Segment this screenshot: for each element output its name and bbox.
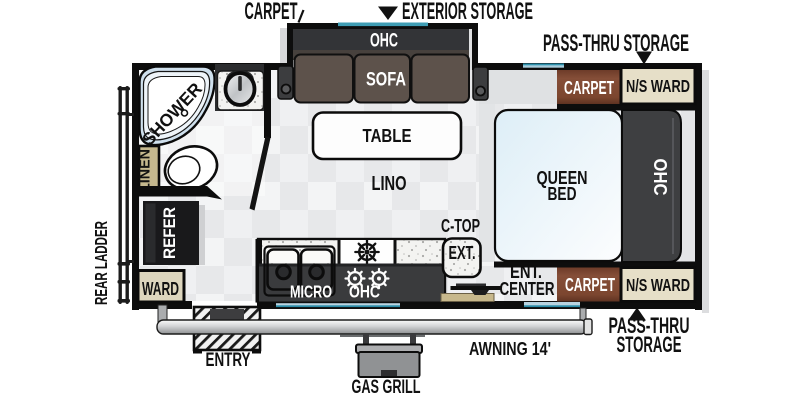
svg-text:LINEN: LINEN bbox=[138, 149, 154, 192]
svg-text:C-TOP: C-TOP bbox=[441, 215, 480, 236]
svg-text:SOFA: SOFA bbox=[366, 70, 406, 91]
svg-text:OHC: OHC bbox=[349, 282, 380, 302]
svg-text:AWNING 14': AWNING 14' bbox=[469, 338, 551, 359]
svg-text:WARD: WARD bbox=[142, 279, 179, 299]
svg-text:EXTERIOR STORAGE: EXTERIOR STORAGE bbox=[402, 0, 533, 25]
svg-text:CARPET: CARPET bbox=[565, 274, 615, 295]
svg-text:REAR LADDER: REAR LADDER bbox=[91, 221, 111, 305]
svg-text:MICRO: MICRO bbox=[290, 282, 332, 302]
svg-text:STORAGE: STORAGE bbox=[617, 332, 682, 357]
svg-text:PASS-THRU STORAGE: PASS-THRU STORAGE bbox=[543, 30, 689, 57]
svg-text:GAS GRILL: GAS GRILL bbox=[352, 376, 421, 398]
svg-text:REFER: REFER bbox=[160, 207, 179, 259]
svg-text:N/S WARD: N/S WARD bbox=[626, 76, 690, 96]
svg-text:OHC: OHC bbox=[650, 159, 670, 196]
svg-text:CARPET: CARPET bbox=[564, 77, 614, 98]
svg-text:ENTRY: ENTRY bbox=[206, 349, 251, 371]
svg-text:CENTER: CENTER bbox=[500, 278, 555, 299]
svg-text:CARPET: CARPET bbox=[245, 0, 298, 25]
svg-text:EXT.: EXT. bbox=[449, 242, 476, 263]
svg-text:N/S WARD: N/S WARD bbox=[626, 275, 690, 295]
svg-text:BED: BED bbox=[548, 184, 577, 204]
svg-text:OHC: OHC bbox=[370, 31, 398, 52]
svg-text:LINO: LINO bbox=[372, 173, 407, 195]
svg-text:TABLE: TABLE bbox=[363, 126, 412, 146]
